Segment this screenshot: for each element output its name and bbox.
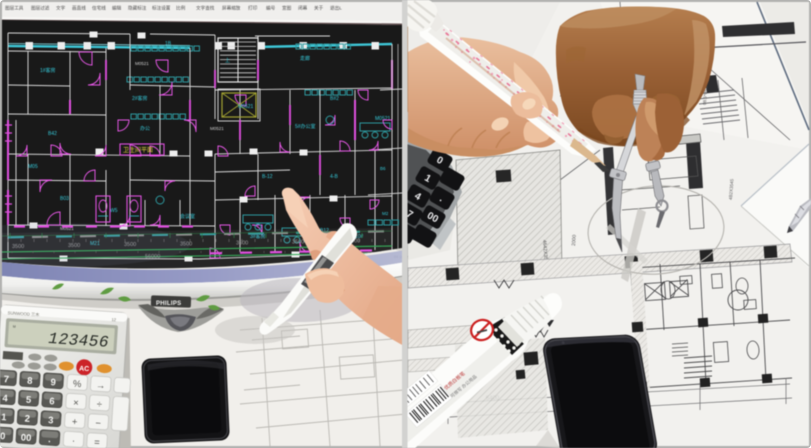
svg-text:2000: 2000 [571, 234, 578, 246]
svg-text:1B: 1B [165, 41, 172, 47]
svg-text:M0521: M0521 [135, 61, 149, 66]
svg-text:M2: M2 [382, 211, 389, 216]
svg-text:编号: 编号 [266, 5, 276, 12]
svg-text:3: 3 [48, 415, 54, 426]
svg-text:标注设置: 标注设置 [152, 5, 171, 12]
svg-text:M0521: M0521 [238, 104, 254, 110]
svg-text:B-12: B-12 [262, 174, 273, 180]
svg-text:屏幕缩放: 屏幕缩放 [222, 5, 241, 12]
svg-text:闭幕: 闭幕 [298, 5, 308, 12]
svg-text:会议室: 会议室 [180, 213, 195, 220]
svg-text:卫生间平面: 卫生间平面 [123, 146, 153, 154]
svg-text:画直线: 画直线 [72, 5, 86, 12]
svg-text:编辑: 编辑 [112, 5, 122, 12]
svg-text:M0521: M0521 [210, 126, 224, 131]
svg-text:0: 0 [0, 431, 6, 442]
svg-text:B#2: B#2 [330, 96, 339, 102]
svg-text:4-B: 4-B [330, 174, 338, 180]
svg-text:上: 上 [225, 57, 230, 64]
svg-text:7: 7 [3, 374, 9, 385]
svg-text:住宅线: 住宅线 [92, 5, 106, 11]
svg-text:→: → [96, 380, 106, 392]
svg-text:W5: W5 [110, 208, 118, 214]
svg-text:PHILIPS: PHILIPS [156, 301, 181, 307]
svg-text:B03: B03 [60, 196, 69, 202]
svg-text:宣图: 宣图 [282, 5, 292, 12]
svg-text:2#客房: 2#客房 [132, 95, 148, 102]
svg-text:B42: B42 [48, 131, 57, 137]
svg-text:退出L: 退出L [330, 5, 342, 12]
svg-text:文字查找: 文字查找 [196, 5, 215, 12]
svg-text:关于: 关于 [314, 5, 324, 12]
svg-text:隐藏标注: 隐藏标注 [128, 5, 147, 12]
svg-text:00: 00 [20, 432, 31, 444]
svg-text:2: 2 [24, 414, 30, 425]
svg-text:办公: 办公 [140, 125, 150, 132]
svg-text:AC: AC [79, 365, 90, 373]
svg-text:9: 9 [50, 377, 56, 388]
svg-text:%: % [73, 379, 83, 391]
svg-text:8: 8 [27, 376, 33, 387]
svg-text:图层过滤: 图层过滤 [31, 5, 50, 12]
svg-text:B6: B6 [380, 166, 386, 171]
svg-text:÷: ÷ [96, 399, 102, 410]
svg-text:打印: 打印 [248, 5, 258, 12]
svg-text:走廊: 走廊 [300, 55, 310, 62]
svg-text:×: × [73, 398, 79, 409]
svg-text:文字: 文字 [56, 5, 66, 12]
svg-text:M: M [13, 325, 16, 329]
svg-text:比例: 比例 [176, 5, 186, 12]
svg-text:5#办公室: 5#办公室 [295, 123, 316, 130]
svg-text:6: 6 [49, 396, 55, 407]
svg-text:1#客房: 1#客房 [40, 67, 56, 74]
svg-text:M05: M05 [28, 164, 38, 170]
